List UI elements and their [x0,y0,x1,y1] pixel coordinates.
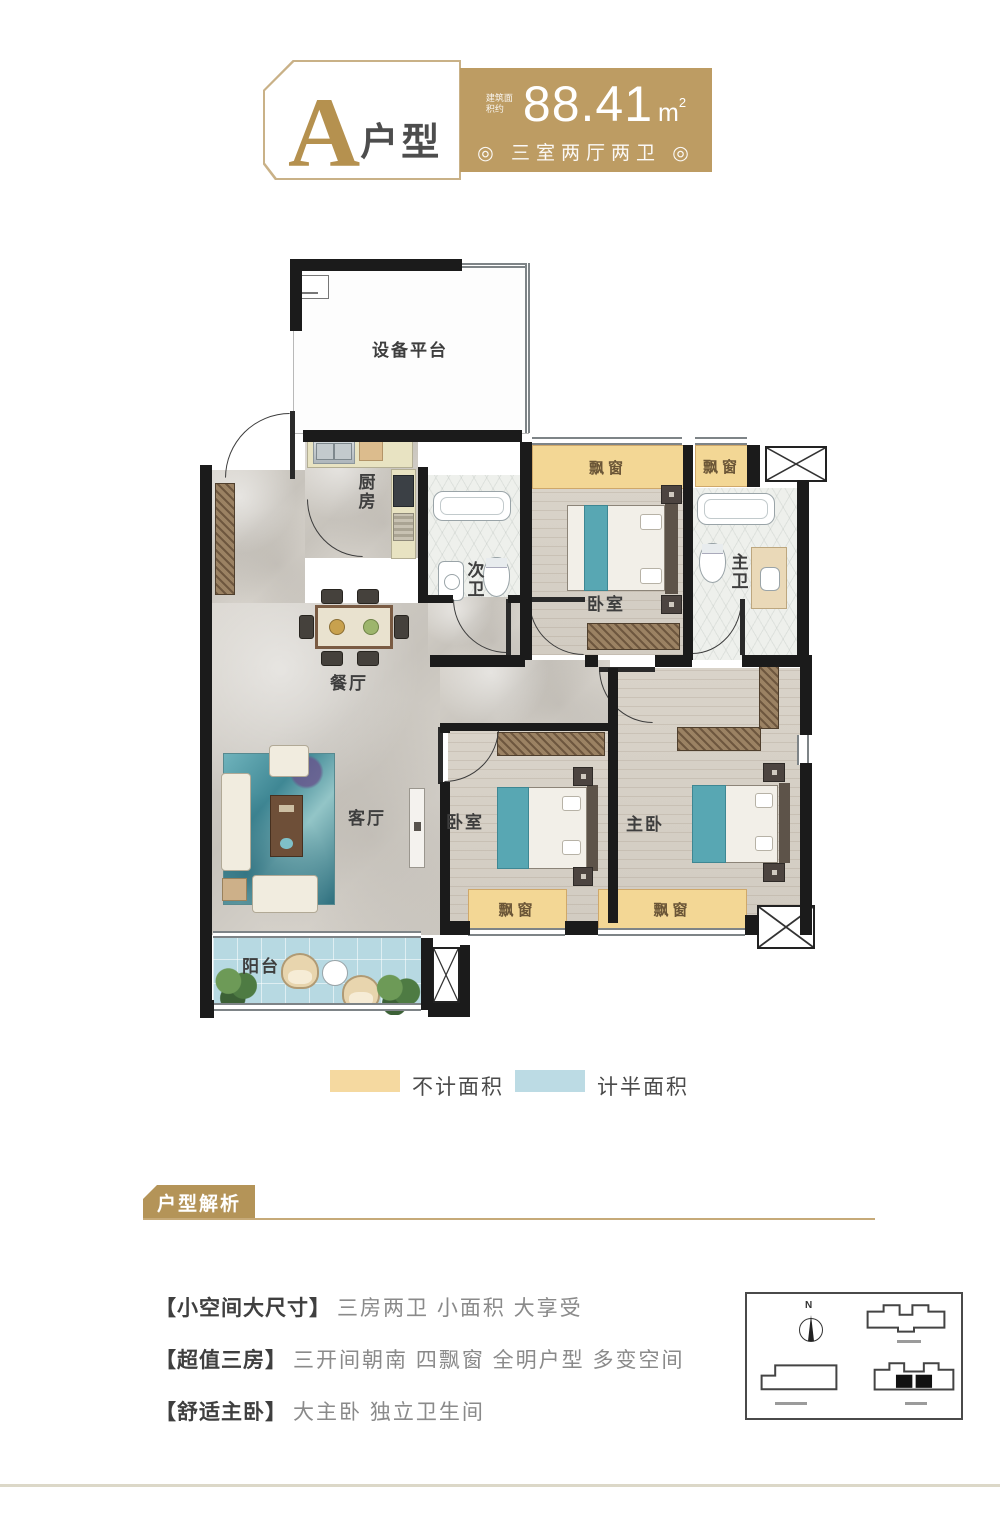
dining-chair [394,615,409,639]
type-suffix: 户型 [360,111,442,174]
wall [745,915,759,935]
nightstand [573,767,593,786]
pillow [562,796,581,811]
headboard [587,785,598,871]
shoe-cabinet [215,483,235,595]
building-outline-2 [873,1360,955,1396]
north-label: N [805,1300,812,1311]
room-label-balcony: 阳台 [235,953,287,975]
wardrobe [759,663,779,729]
building-label-smudge [897,1340,921,1343]
window [797,735,809,765]
wall [585,655,598,667]
bay-window-top-2: 飘窗 [695,445,749,487]
bed-quilt [692,785,726,863]
area-unit: m2 [658,95,686,128]
wall [742,655,812,667]
wall [290,259,462,271]
room-label-master-bath: 主卫 [727,541,749,603]
coffee-table [270,795,303,857]
dining-chair [357,589,379,604]
corridor-floor [440,660,610,723]
bed-quilt [497,787,529,869]
bay-window-top-1: 飘窗 [532,445,684,489]
platform-edge [460,263,530,268]
wall [448,921,470,935]
type-title: A 户型 [288,62,458,174]
analysis-title-tag: 户型解析 [143,1185,255,1219]
pillow [562,840,581,855]
vanity-sink [751,547,787,609]
analysis-point-body: 大主卧 独立卫生间 [293,1401,485,1424]
legend-label-excluded: 不计面积 [412,1071,504,1101]
armchair [269,745,309,777]
nightstand [661,595,682,614]
wall [608,668,618,923]
bedroom-bottom-door-leaf [438,727,443,784]
wall [520,442,532,660]
headboard [779,783,790,863]
bed-quilt [584,505,608,591]
nightstand [573,867,593,886]
bay-window-label: 飘窗 [703,456,741,477]
wall [200,1000,214,1018]
legend-swatch-blue [515,1070,585,1092]
wall [800,763,812,935]
headboard [665,502,678,594]
wall [508,595,520,603]
sofa [221,773,251,871]
north-arrow-icon [799,1318,823,1342]
toilet [483,557,510,597]
area-superscript: 2 [679,95,686,110]
wardrobe [587,623,680,650]
dining-chair [357,651,379,666]
bathtub [697,493,775,525]
cutting-board [359,441,383,461]
building-label-smudge [905,1402,927,1405]
area-row: 建筑面积约 88.41 m2 [486,75,686,133]
wall [655,655,692,667]
wardrobe [677,727,761,751]
entry-door-leaf [290,411,295,479]
wall [683,445,693,660]
analysis-point: 【超值三房】三开间朝南 四飘窗 全明户型 多变空间 [155,1344,685,1374]
window [695,437,747,445]
analysis-point-head: 【超值三房】 [155,1349,287,1372]
room-label-bedroom-bottom: 卧室 [441,809,489,831]
wall [290,259,302,331]
analysis-divider [143,1218,875,1220]
type-letter: A [288,92,360,174]
bathtub [433,491,511,521]
dining-chair [299,615,314,639]
wall [418,467,428,603]
room-label-second-bath: 次卫 [463,551,485,609]
shaft-box [432,947,460,1003]
bed [567,505,665,591]
wall [797,480,809,660]
wardrobe [497,732,605,756]
pillow [755,836,773,851]
bed [497,787,587,869]
second-bath-door-leaf [506,599,511,655]
tv-cabinet [409,788,425,868]
kitchen-mat [393,513,414,541]
toilet [699,543,726,583]
balcony-window [213,1003,421,1011]
dining-chair [321,651,343,666]
balcony-slider [213,931,421,938]
bay-window-bottom-2: 飘窗 [598,889,747,930]
pillow [640,514,662,530]
nightstand [661,485,682,504]
nightstand [763,863,785,882]
window [532,437,682,445]
analysis-point-head: 【舒适主卧】 [155,1401,287,1424]
room-label-kitchen: 厨房 [352,461,378,523]
window [598,928,745,936]
balcony-table [322,960,348,986]
wall [800,660,812,735]
area-value: 88.41 [523,75,653,133]
sofa [252,875,318,913]
room-label-equipment: 设备平台 [335,337,485,359]
ac-platform-box [765,446,827,482]
analysis-point-body: 三房两卫 小面积 大享受 [337,1297,583,1320]
wall [448,723,610,731]
analysis-point-head: 【小空间大尺寸】 [155,1297,331,1320]
analysis-point-body: 三开间朝南 四飘窗 全明户型 多变空间 [293,1349,685,1372]
analysis-point: 【小空间大尺寸】三房两卫 小面积 大享受 [155,1292,583,1322]
room-label-dining: 餐厅 [327,671,371,691]
legend-swatch-yellow [330,1070,400,1092]
page-bottom-divider [0,1484,1000,1487]
building-outline-3 [755,1362,843,1396]
dining-table [315,605,393,649]
analysis-point: 【舒适主卧】大主卧 独立卫生间 [155,1396,485,1426]
area-prefix: 建筑面积约 [486,93,518,116]
nightstand [763,763,785,782]
site-map: N [745,1292,963,1420]
wall [430,655,525,667]
wall [747,445,760,487]
platform-edge [525,263,530,433]
building-outline-1 [865,1302,947,1334]
master-bath-door-leaf [740,599,745,655]
bay-window-label: 飘窗 [498,899,536,920]
wall [200,465,212,1018]
entry-door-arc [225,413,290,478]
layout-summary: ◎ 三室两厅两卫 ◎ [477,138,695,165]
room-label-master-bedroom: 主卧 [621,811,669,833]
dining-chair [321,589,343,604]
wall [303,430,522,442]
bay-window-label: 飘窗 [653,899,691,920]
floor-plan: 飘窗 飘窗 飘窗 飘窗 [195,255,835,1025]
wall [440,782,450,935]
kitchen-sink [313,439,355,464]
legend-label-half: 计半面积 [597,1071,689,1101]
bed [692,785,778,863]
bay-window-label: 飘窗 [589,457,627,478]
bay-window-bottom-1: 飘窗 [468,889,567,930]
side-table [222,878,247,901]
stove [393,475,414,507]
area-banner: 建筑面积约 88.41 m2 ◎ 三室两厅两卫 ◎ [460,68,712,172]
wall [428,1003,470,1017]
window [468,928,565,936]
pillow [755,793,773,808]
wall [565,921,598,935]
building-label-smudge [775,1402,807,1405]
wall [421,938,433,1010]
room-label-living: 客厅 [343,805,391,827]
room-label-bedroom-top: 卧室 [563,591,649,613]
pillow [640,568,662,584]
